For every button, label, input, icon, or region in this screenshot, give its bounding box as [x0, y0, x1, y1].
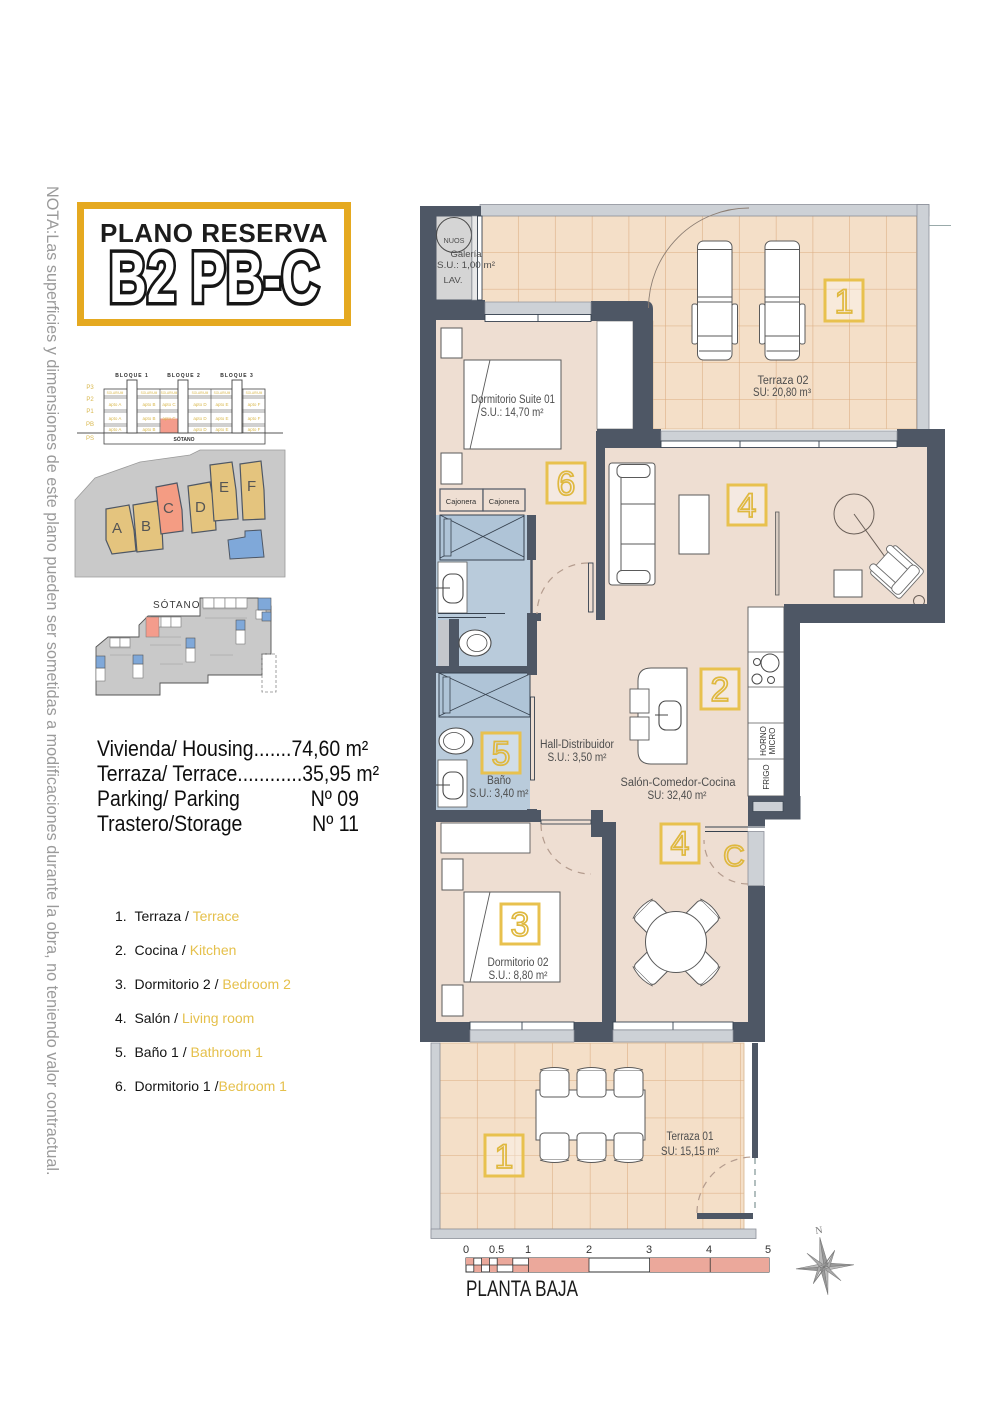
svg-text:apto B: apto B	[142, 416, 155, 421]
svg-text:apto D: apto D	[193, 402, 207, 407]
svg-text:C: C	[723, 840, 745, 873]
svg-text:FRIGO: FRIGO	[762, 764, 771, 789]
svg-text:apto C: apto C	[162, 416, 176, 421]
svg-text:S.U.: 14,70 m²: S.U.: 14,70 m²	[481, 407, 544, 419]
svg-text:Cajonera: Cajonera	[489, 497, 520, 506]
svg-text:apto A: apto A	[109, 402, 122, 407]
svg-text:1: 1	[525, 1244, 531, 1256]
svg-text:SÓTANO: SÓTANO	[173, 435, 194, 443]
svg-text:apto F: apto F	[248, 427, 261, 432]
svg-text:4: 4	[671, 825, 690, 863]
svg-text:apto B: apto B	[142, 402, 155, 407]
svg-text:BLOQUE 3: BLOQUE 3	[220, 373, 254, 379]
svg-text:S.U.: 3,40 m²: S.U.: 3,40 m²	[470, 788, 529, 800]
svg-text:F: F	[247, 478, 256, 495]
svg-text:PS: PS	[86, 436, 94, 442]
svg-text:Galería: Galería	[451, 249, 483, 260]
svg-text:0.5: 0.5	[489, 1244, 504, 1256]
svg-text:NUOS: NUOS	[444, 236, 465, 245]
svg-text:Dormitorio 02: Dormitorio 02	[488, 957, 549, 969]
svg-text:apto D: apto D	[193, 427, 207, 432]
svg-text:D: D	[195, 499, 206, 516]
svg-text:P1: P1	[86, 409, 94, 415]
svg-text:Terraza 01: Terraza 01	[667, 1131, 714, 1143]
svg-text:4: 4	[738, 487, 757, 525]
svg-text:0: 0	[463, 1244, 469, 1256]
svg-text:apto F: apto F	[248, 416, 261, 421]
svg-text:N: N	[815, 1225, 824, 1237]
svg-text:3: 3	[511, 906, 530, 944]
svg-text:S.U.: 8,80 m²: S.U.: 8,80 m²	[489, 970, 548, 982]
svg-text:P2: P2	[86, 397, 94, 403]
svg-text:apto D: apto D	[193, 416, 207, 421]
svg-text:S.U.: 1,00 m²: S.U.: 1,00 m²	[437, 260, 495, 271]
svg-text:Hall-Distribuidor: Hall-Distribuidor	[540, 739, 614, 751]
svg-text:SU: 20,80 m³: SU: 20,80 m³	[753, 387, 811, 399]
svg-text:apto A: apto A	[109, 416, 122, 421]
svg-text:apto E: apto E	[215, 427, 228, 432]
svg-text:SOLARIUM: SOLARIUM	[107, 391, 124, 395]
svg-text:5: 5	[765, 1244, 771, 1256]
svg-text:P3: P3	[86, 385, 94, 391]
svg-text:Baño: Baño	[487, 775, 511, 787]
svg-text:SU: 32,40 m²: SU: 32,40 m²	[648, 790, 707, 802]
svg-text:PLANTA BAJA: PLANTA BAJA	[466, 1276, 578, 1301]
svg-text:SÓTANO: SÓTANO	[153, 598, 200, 611]
svg-text:apto F: apto F	[248, 402, 261, 407]
svg-text:Terraza 02: Terraza 02	[758, 375, 809, 387]
svg-text:A: A	[112, 520, 122, 537]
svg-text:E: E	[219, 479, 229, 496]
svg-text:2: 2	[586, 1244, 592, 1256]
svg-text:SU: 15,15 m²: SU: 15,15 m²	[661, 1146, 719, 1158]
svg-text:Cajonera: Cajonera	[446, 497, 477, 506]
svg-text:MICRO: MICRO	[768, 728, 777, 755]
svg-text:apto E: apto E	[215, 402, 228, 407]
svg-text:apto C: apto C	[162, 402, 176, 407]
svg-text:1: 1	[835, 283, 854, 321]
svg-text:BLOQUE 1: BLOQUE 1	[115, 373, 149, 379]
svg-text:4: 4	[706, 1244, 712, 1256]
svg-text:SOLARIUM: SOLARIUM	[161, 391, 178, 395]
svg-text:PB: PB	[86, 422, 94, 428]
svg-text:B: B	[141, 518, 151, 535]
svg-text:BLOQUE 2: BLOQUE 2	[167, 373, 201, 379]
svg-text:Salón-Comedor-Cocina: Salón-Comedor-Cocina	[621, 777, 737, 789]
svg-text:SOLARIUM: SOLARIUM	[214, 391, 231, 395]
svg-text:6: 6	[557, 465, 576, 503]
svg-text:HORNO: HORNO	[759, 726, 768, 756]
svg-text:5: 5	[492, 735, 511, 773]
svg-text:3: 3	[646, 1244, 652, 1256]
svg-text:SOLARIUM: SOLARIUM	[192, 391, 209, 395]
svg-text:apto E: apto E	[215, 416, 228, 421]
svg-text:S.U.: 3,50 m²: S.U.: 3,50 m²	[548, 752, 607, 764]
svg-text:LAV.: LAV.	[444, 275, 463, 285]
svg-text:Dormitorio Suite 01: Dormitorio Suite 01	[471, 394, 555, 406]
svg-text:2: 2	[711, 671, 730, 709]
svg-text:apto A: apto A	[109, 427, 122, 432]
svg-text:C: C	[163, 500, 174, 517]
svg-text:SOLARIUM: SOLARIUM	[246, 391, 263, 395]
svg-text:1: 1	[495, 1138, 514, 1176]
svg-text:SOLARIUM: SOLARIUM	[141, 391, 158, 395]
svg-text:apto B: apto B	[142, 427, 155, 432]
